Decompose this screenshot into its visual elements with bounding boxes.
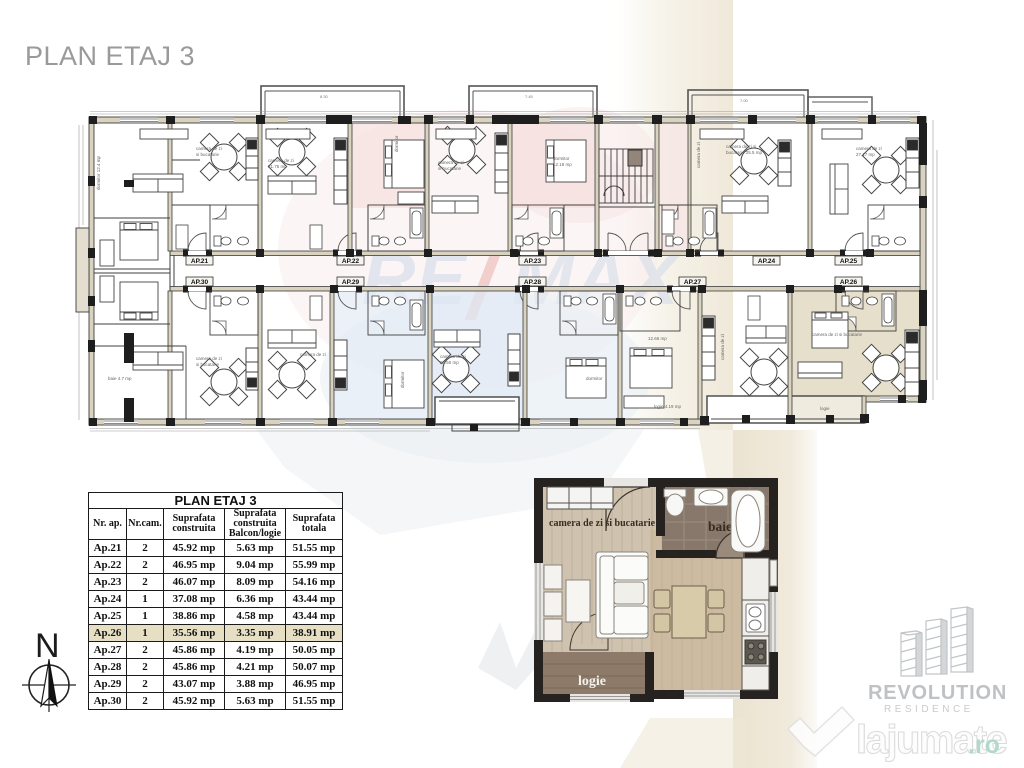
svg-text:8.30: 8.30 bbox=[320, 94, 329, 99]
svg-text:27.17 mp: 27.17 mp bbox=[856, 152, 875, 157]
svg-text:dormitor: dormitor bbox=[394, 135, 399, 152]
svg-text:12.18 mp: 12.18 mp bbox=[553, 162, 572, 167]
svg-text:camera de zi: camera de zi bbox=[268, 158, 294, 163]
svg-text:AP.24: AP.24 bbox=[758, 258, 776, 265]
svg-text:7.00: 7.00 bbox=[740, 98, 749, 103]
svg-text:RESIDENCE: RESIDENCE bbox=[884, 704, 974, 715]
svg-text:REVOLUTION: REVOLUTION bbox=[868, 682, 1007, 704]
svg-text:si bucatarie: si bucatarie bbox=[438, 166, 462, 171]
svg-text:camera de zi si bucatarie: camera de zi si bucatarie bbox=[549, 518, 656, 529]
svg-text:camera de zi: camera de zi bbox=[856, 146, 882, 151]
svg-text:AP.28: AP.28 bbox=[524, 279, 542, 286]
svg-text:31.75 mp: 31.75 mp bbox=[268, 164, 287, 169]
svg-text:logie 4.19 mp: logie 4.19 mp bbox=[654, 404, 682, 409]
svg-text:camera de zi si bucatarie: camera de zi si bucatarie bbox=[812, 332, 863, 337]
svg-text:si bucatarie: si bucatarie bbox=[196, 362, 220, 367]
svg-text:camera de zi si: camera de zi si bbox=[726, 144, 756, 149]
svg-text:dormitor: dormitor bbox=[400, 371, 405, 388]
svg-text:AP.25: AP.25 bbox=[840, 258, 858, 265]
svg-text:camera de zi: camera de zi bbox=[196, 146, 222, 151]
svg-text:camera de zi: camera de zi bbox=[300, 352, 326, 357]
svg-text:logie: logie bbox=[820, 406, 830, 411]
svg-text:N: N bbox=[35, 627, 60, 665]
svg-text:AP.29: AP.29 bbox=[342, 279, 360, 286]
svg-text:dormitor: dormitor bbox=[586, 376, 603, 381]
svg-text:AP.27: AP.27 bbox=[684, 279, 702, 286]
svg-text:AP.23: AP.23 bbox=[524, 258, 542, 265]
svg-text:baie: baie bbox=[708, 519, 732, 534]
svg-text:camera de zi: camera de zi bbox=[438, 160, 464, 165]
svg-text:camera de zi: camera de zi bbox=[440, 354, 466, 359]
svg-text:logie: logie bbox=[578, 674, 606, 689]
svg-text:bucatarie 25.5 mp: bucatarie 25.5 mp bbox=[726, 150, 763, 155]
svg-text:.ro: .ro bbox=[968, 731, 1000, 759]
svg-text:camera de zi: camera de zi bbox=[196, 356, 222, 361]
svg-text:camera de zi: camera de zi bbox=[696, 142, 701, 168]
svg-text:dormitor 12.4 mp: dormitor 12.4 mp bbox=[96, 155, 101, 190]
svg-text:AP.21: AP.21 bbox=[191, 258, 209, 265]
svg-text:AP.30: AP.30 bbox=[191, 279, 209, 286]
svg-text:12.66 mp: 12.66 mp bbox=[648, 336, 667, 341]
svg-text:si bucatarie: si bucatarie bbox=[196, 152, 220, 157]
svg-text:baie 4.7 mp: baie 4.7 mp bbox=[108, 376, 132, 381]
svg-text:7.45: 7.45 bbox=[525, 94, 534, 99]
svg-text:camera de zi: camera de zi bbox=[720, 334, 725, 360]
svg-text:AP.26: AP.26 bbox=[840, 279, 858, 286]
svg-text:AP.22: AP.22 bbox=[342, 258, 360, 265]
svg-text:dormitor: dormitor bbox=[553, 156, 570, 161]
svg-text:25.50 mp: 25.50 mp bbox=[440, 360, 459, 365]
